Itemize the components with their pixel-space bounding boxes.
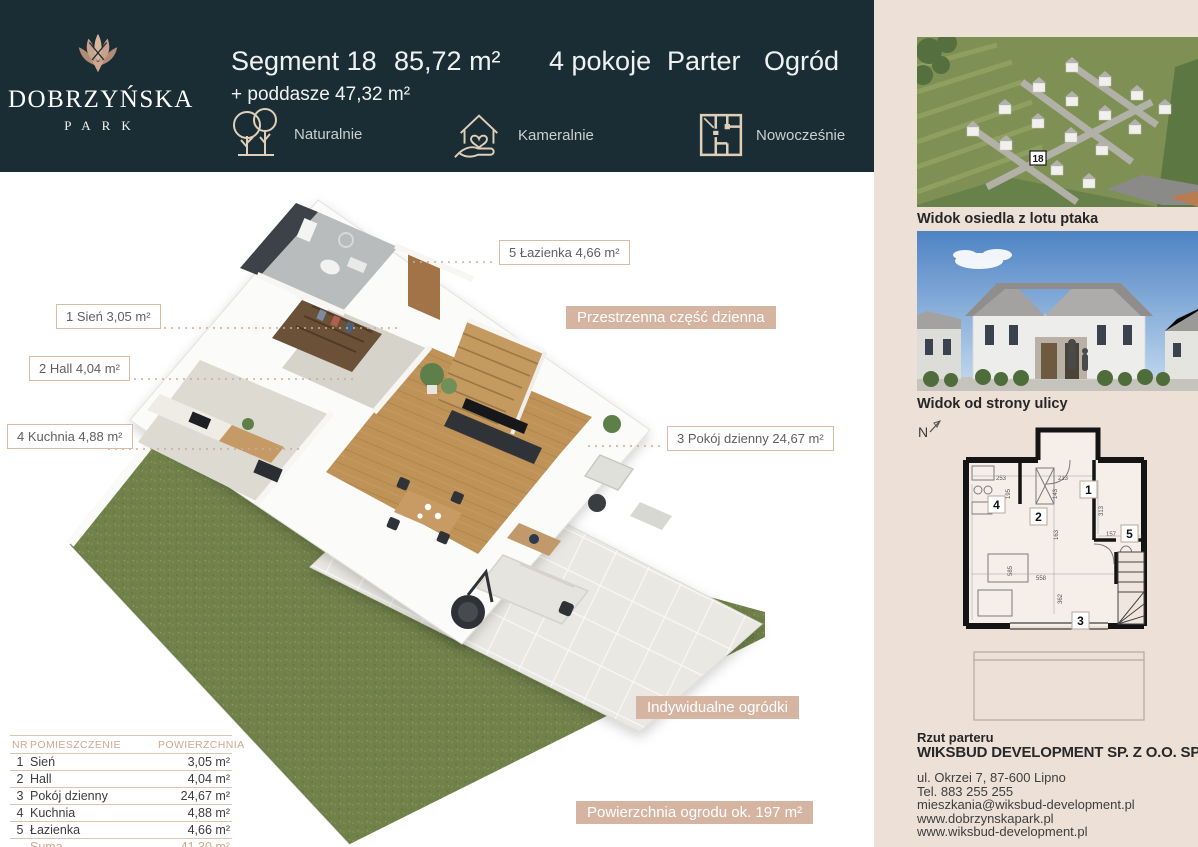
schematic-caption: Rzut parteru: [917, 730, 994, 745]
svg-text:362: 362: [1058, 593, 1064, 604]
feature-kameralnie: Kameralnie: [452, 106, 594, 164]
schematic-stairs: [1118, 552, 1144, 624]
table-row: 3 Pokój dzienny 24,67 m²: [10, 787, 232, 804]
room-label-pokoj-dzienny: 3 Pokój dzienny 24,67 m²: [667, 426, 834, 451]
svg-text:18: 18: [1032, 154, 1044, 165]
sum-label: Suma: [30, 841, 158, 847]
svg-text:313: 313: [1099, 505, 1105, 516]
company-website-1[interactable]: www.dobrzynskapark.pl: [917, 812, 1135, 826]
company-email[interactable]: mieszkania@wiksbud-development.pl: [917, 798, 1135, 812]
svg-text:213: 213: [1058, 476, 1069, 482]
logo-subtitle: PARK: [8, 118, 188, 134]
company-website-2[interactable]: www.wiksbud-development.pl: [917, 825, 1135, 839]
sidebar: 18 Widok osiedla z lotu ptaka: [874, 0, 1198, 847]
col-powierzchnia: POWIERZCHNIA: [158, 739, 232, 752]
col-pomieszczenie: POMIESZCZENIE: [30, 739, 158, 752]
schematic-terrace: [974, 652, 1144, 720]
table-row: 1 Sień 3,05 m²: [10, 753, 232, 770]
room-label-sien: 1 Sień 3,05 m²: [56, 304, 161, 329]
feature-naturalnie: Naturalnie: [230, 103, 362, 165]
feature-nowoczesnie: Nowocześnie: [698, 112, 845, 158]
segment-18-marker: 18: [1030, 151, 1046, 165]
schematic-floorplan: 253 195 213 143 163 313 157 558 585 362: [958, 424, 1148, 731]
garden-feature: Ogród: [764, 46, 839, 77]
svg-text:157: 157: [1106, 532, 1117, 538]
page: DOBRZYŃSKA PARK Segment 18 85,72 m² 4 po…: [0, 0, 1198, 847]
svg-text:5: 5: [1126, 527, 1133, 541]
segment-area: 85,72 m²: [394, 46, 501, 77]
svg-text:4: 4: [993, 498, 1000, 512]
header: DOBRZYŃSKA PARK Segment 18 85,72 m² 4 po…: [0, 0, 874, 172]
svg-text:195: 195: [1006, 488, 1012, 499]
company-name: WIKSBUD DEVELOPMENT SP. Z O.O. SP. K.: [917, 744, 1198, 761]
tag-przestrzenna-czesc-dzienna: Przestrzenna część dzienna: [566, 306, 776, 329]
svg-text:3: 3: [1077, 614, 1084, 628]
rooms-table-header: NR POMIESZCZENIE POWIERZCHNIA: [10, 735, 232, 753]
lotus-logo-icon: [70, 30, 126, 80]
feature-label: Naturalnie: [294, 126, 362, 143]
svg-text:585: 585: [1008, 565, 1014, 576]
segment-title: Segment 18: [231, 46, 377, 77]
aerial-view-photo: 18: [917, 37, 1198, 207]
svg-text:253: 253: [996, 476, 1007, 482]
company-phone[interactable]: Tel. 883 255 255: [917, 785, 1135, 799]
svg-text:558: 558: [1036, 576, 1047, 582]
logo-title: DOBRZYŃSKA: [8, 86, 188, 114]
tag-powierzchnia-ogrodu: Powierzchnia ogrodu ok. 197 m²: [576, 801, 813, 824]
table-sum-row: Suma 41,30 m²: [10, 838, 232, 847]
caption-street-view: Widok od strony ulicy: [917, 396, 1068, 412]
table-row: 2 Hall 4,04 m²: [10, 770, 232, 787]
street-view-photo: [917, 231, 1198, 391]
floorplan-icon: [698, 112, 744, 158]
col-nr: NR: [10, 739, 30, 752]
feature-label: Nowocześnie: [756, 127, 845, 144]
room-label-kuchnia: 4 Kuchnia 4,88 m²: [7, 424, 133, 449]
rooms-count: 4 pokoje: [549, 46, 651, 77]
house-heart-icon: [452, 106, 506, 164]
room-label-lazienka: 5 Łazienka 4,66 m²: [499, 240, 630, 265]
main-plan-area: 5 Łazienka 4,66 m² 1 Sień 3,05 m² 2 Hall…: [0, 172, 874, 847]
svg-text:2: 2: [1035, 510, 1042, 524]
floor-name: Parter: [667, 46, 741, 77]
company-address: ul. Okrzei 7, 87-600 Lipno: [917, 771, 1135, 785]
table-row: 4 Kuchnia 4,88 m²: [10, 804, 232, 821]
svg-text:N: N: [918, 424, 928, 440]
logo: DOBRZYŃSKA PARK: [8, 30, 188, 134]
compass-north-icon: N: [916, 418, 942, 447]
feature-label: Kameralnie: [518, 127, 594, 144]
trees-icon: [230, 103, 282, 165]
svg-text:163: 163: [1054, 529, 1060, 540]
contact-block: ul. Okrzei 7, 87-600 Lipno Tel. 883 255 …: [917, 771, 1135, 839]
sum-value: 41,30 m²: [158, 841, 232, 847]
table-row: 5 Łazienka 4,66 m²: [10, 821, 232, 838]
room-label-hall: 2 Hall 4,04 m²: [29, 356, 130, 381]
left-house: [917, 311, 961, 379]
rooms-table: NR POMIESZCZENIE POWIERZCHNIA 1 Sień 3,0…: [10, 735, 232, 847]
caption-aerial-view: Widok osiedla z lotu ptaka: [917, 211, 1098, 227]
svg-text:1: 1: [1085, 483, 1092, 497]
tag-indywidualne-ogrodki: Indywidualne ogródki: [636, 696, 799, 719]
